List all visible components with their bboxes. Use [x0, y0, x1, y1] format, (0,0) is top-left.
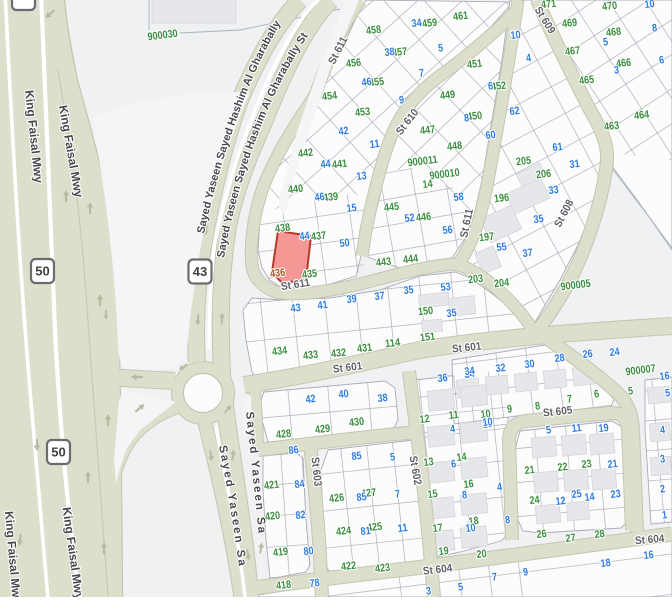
svg-text:62: 62 [509, 105, 520, 118]
svg-text:35: 35 [446, 307, 457, 320]
svg-text:19: 19 [598, 422, 609, 435]
svg-text:50: 50 [35, 264, 49, 279]
svg-text:85: 85 [356, 491, 367, 504]
svg-text:16: 16 [659, 370, 670, 383]
svg-text:31: 31 [569, 158, 580, 171]
svg-text:28: 28 [594, 528, 605, 541]
svg-text:454: 454 [321, 90, 338, 104]
svg-text:16: 16 [643, 549, 654, 562]
svg-text:12: 12 [555, 495, 566, 508]
svg-text:15: 15 [427, 488, 438, 501]
svg-text:10: 10 [644, 0, 655, 11]
svg-text:33: 33 [548, 184, 559, 197]
svg-text:11: 11 [397, 522, 408, 535]
svg-text:441: 441 [331, 158, 347, 172]
svg-text:13: 13 [356, 170, 367, 183]
svg-text:10: 10 [510, 29, 521, 42]
svg-text:10: 10 [465, 522, 476, 535]
svg-text:35: 35 [533, 213, 544, 226]
svg-text:46: 46 [361, 76, 372, 89]
svg-text:38: 38 [384, 46, 395, 59]
svg-text:434: 434 [271, 345, 288, 359]
svg-text:444: 444 [402, 253, 419, 267]
svg-text:465: 465 [578, 74, 594, 88]
svg-text:36: 36 [437, 372, 448, 385]
svg-text:464: 464 [633, 109, 650, 123]
svg-text:440: 440 [287, 183, 303, 197]
svg-text:418: 418 [275, 579, 291, 593]
svg-text:430: 430 [348, 416, 364, 430]
svg-text:421: 421 [263, 479, 279, 493]
svg-text:41: 41 [317, 299, 328, 312]
svg-text:43: 43 [290, 302, 301, 315]
svg-text:20: 20 [476, 548, 487, 561]
svg-text:423: 423 [374, 562, 390, 576]
svg-text:203: 203 [467, 273, 483, 287]
svg-text:469: 469 [561, 17, 577, 31]
svg-text:80: 80 [303, 545, 314, 558]
svg-text:445: 445 [383, 201, 399, 215]
svg-text:27: 27 [565, 532, 576, 545]
svg-text:18: 18 [600, 557, 611, 570]
svg-text:428: 428 [275, 428, 291, 442]
svg-text:453: 453 [354, 106, 370, 120]
svg-text:40: 40 [338, 388, 349, 401]
svg-text:461: 461 [452, 10, 468, 24]
svg-text:22: 22 [557, 461, 568, 474]
svg-text:463: 463 [603, 120, 619, 134]
svg-text:12: 12 [419, 413, 430, 426]
svg-text:30: 30 [524, 358, 535, 371]
svg-text:436: 436 [269, 267, 285, 281]
svg-text:43: 43 [193, 264, 207, 279]
svg-text:26: 26 [582, 348, 593, 361]
svg-text:433: 433 [302, 349, 318, 363]
svg-text:11: 11 [571, 422, 582, 435]
svg-text:420: 420 [264, 510, 280, 524]
svg-text:467: 467 [564, 45, 580, 59]
svg-text:196: 196 [493, 192, 509, 206]
svg-text:458: 458 [365, 24, 381, 38]
svg-text:42: 42 [305, 393, 316, 406]
svg-text:424: 424 [335, 525, 352, 539]
svg-text:82: 82 [295, 509, 306, 522]
svg-text:456: 456 [345, 57, 361, 71]
svg-text:11: 11 [448, 409, 459, 422]
svg-text:28: 28 [554, 352, 565, 365]
svg-text:11: 11 [369, 138, 380, 151]
svg-text:17: 17 [432, 522, 443, 535]
svg-text:438: 438 [274, 222, 290, 236]
svg-text:38: 38 [377, 392, 388, 405]
svg-text:10: 10 [482, 416, 493, 429]
svg-text:422: 422 [340, 560, 356, 574]
svg-text:32: 32 [495, 362, 506, 375]
svg-text:429: 429 [314, 423, 330, 437]
svg-text:53: 53 [440, 281, 451, 294]
svg-text:52: 52 [404, 212, 415, 225]
svg-text:21: 21 [524, 464, 535, 477]
svg-text:23: 23 [581, 458, 592, 471]
svg-text:459: 459 [421, 17, 437, 31]
svg-text:114: 114 [384, 337, 401, 351]
svg-text:426: 426 [328, 492, 344, 506]
svg-text:25: 25 [571, 488, 582, 501]
svg-text:21: 21 [607, 458, 618, 471]
svg-text:437: 437 [310, 230, 326, 244]
svg-text:23: 23 [610, 488, 621, 501]
svg-text:35: 35 [403, 284, 414, 297]
svg-text:431: 431 [356, 342, 372, 356]
svg-text:470: 470 [601, 0, 617, 13]
svg-text:204: 204 [493, 277, 510, 291]
svg-text:151: 151 [419, 331, 435, 345]
svg-text:447: 447 [419, 124, 435, 138]
svg-text:37: 37 [374, 290, 385, 303]
svg-text:81: 81 [360, 525, 371, 538]
svg-text:85: 85 [351, 450, 362, 463]
svg-text:432: 432 [330, 347, 346, 361]
svg-text:197: 197 [478, 231, 494, 245]
svg-text:15: 15 [346, 202, 357, 215]
svg-text:419: 419 [272, 546, 288, 560]
svg-text:446: 446 [415, 211, 431, 225]
svg-text:50: 50 [339, 237, 350, 250]
svg-text:50: 50 [51, 445, 65, 460]
svg-text:443: 443 [375, 256, 391, 270]
svg-text:19: 19 [438, 545, 449, 558]
svg-text:86: 86 [288, 444, 299, 457]
svg-text:451: 451 [466, 58, 482, 72]
svg-text:46: 46 [314, 191, 325, 204]
svg-text:442: 442 [297, 147, 313, 161]
svg-text:78: 78 [309, 577, 320, 590]
svg-text:58: 58 [453, 191, 464, 204]
svg-text:206: 206 [535, 168, 551, 182]
svg-text:468: 468 [605, 26, 621, 40]
svg-text:448: 448 [446, 140, 462, 154]
svg-text:37: 37 [522, 247, 533, 260]
svg-text:56: 56 [442, 224, 453, 237]
svg-text:205: 205 [515, 155, 531, 169]
svg-text:449: 449 [439, 89, 455, 103]
svg-text:60: 60 [485, 129, 496, 142]
svg-text:26: 26 [536, 528, 547, 541]
svg-text:42: 42 [338, 125, 349, 138]
svg-text:13: 13 [423, 456, 434, 469]
svg-text:55: 55 [496, 241, 507, 254]
svg-text:150: 150 [417, 305, 433, 319]
svg-text:61: 61 [552, 141, 563, 154]
svg-text:39: 39 [346, 293, 357, 306]
